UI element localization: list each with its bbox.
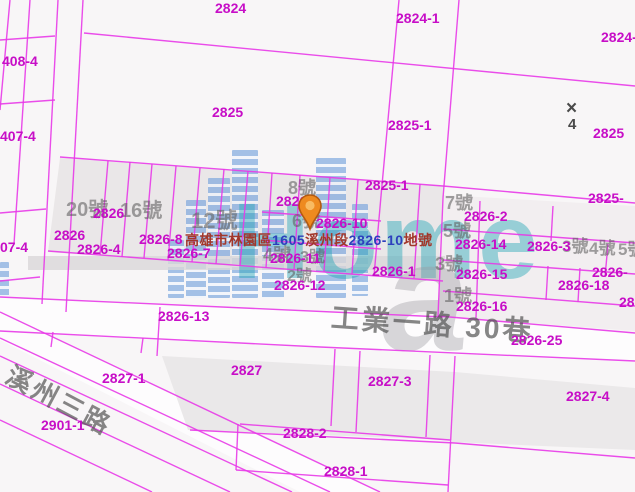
parcel-number-label: 2824	[215, 1, 246, 16]
parcel-number-label: 2825	[212, 105, 243, 120]
parcel-number-label: 28	[619, 295, 635, 310]
parcel-number-label: 2826	[93, 206, 124, 221]
parcel-number-label: 2827	[231, 363, 262, 378]
parcel-number-label: 2826-10	[316, 216, 367, 231]
parcel-number-label: 2825	[593, 126, 624, 141]
address-part: 1605	[272, 232, 305, 248]
house-number-label: 4號	[589, 240, 615, 258]
parcel-number-label: 2825-1	[365, 178, 409, 193]
house-number-label: 16號	[120, 201, 162, 222]
parcel-number-label: 2826-14	[455, 237, 506, 252]
address-part: 高雄市林園區	[185, 232, 272, 248]
parcel-number-label: 2828-1	[324, 464, 368, 479]
parcel-number-label: 2827-1	[102, 371, 146, 386]
parcel-number-label: 2901-1	[41, 418, 85, 433]
parcel-number-label: 2826-16	[456, 299, 507, 314]
survey-marker-number: 4	[568, 116, 576, 133]
parcel-number-label: 2826-12	[274, 278, 325, 293]
parcel-address-label: 高雄市林園區1605溪州段2826-10地號	[185, 230, 433, 250]
house-number-label: 12號	[191, 209, 237, 232]
parcel-number-label: 2826-1	[372, 264, 416, 279]
cadastral-map[interactable]: Home a	[0, 0, 635, 492]
parcel-number-label: 407-4	[0, 129, 36, 144]
parcel-number-label: 2824-	[601, 30, 635, 45]
parcel-number-label: 2826-13	[158, 309, 209, 324]
parcel-number-label: 2827-3	[368, 374, 412, 389]
parcel-number-label: 2826-4	[77, 242, 121, 257]
address-part: 溪州段	[305, 232, 349, 248]
parcel-number-label: 2828-2	[283, 426, 327, 441]
address-part: 地號	[404, 232, 433, 248]
parcel-number-label: 2826-18	[558, 278, 609, 293]
house-number-label: 5號	[618, 241, 635, 259]
parcel-number-label: 2824-1	[396, 11, 440, 26]
parcel-number-label: 408-4	[2, 54, 38, 69]
address-part: 2826-10	[349, 232, 404, 248]
parcel-number-label: 2825-	[588, 191, 624, 206]
parcel-number-label: 2826-15	[456, 267, 507, 282]
parcel-number-label: 2827-4	[566, 389, 610, 404]
parcel-number-label: 2826-3	[527, 239, 571, 254]
location-pin[interactable]	[297, 193, 323, 233]
parcel-number-label: 2826-2	[464, 209, 508, 224]
parcel-number-label: 2826-	[592, 265, 628, 280]
parcel-number-label: 2826-25	[511, 333, 562, 348]
parcel-number-label: 2826-11	[270, 251, 321, 266]
parcel-number-label: 2825-1	[388, 118, 432, 133]
parcel-number-label: 07-4	[0, 240, 28, 255]
